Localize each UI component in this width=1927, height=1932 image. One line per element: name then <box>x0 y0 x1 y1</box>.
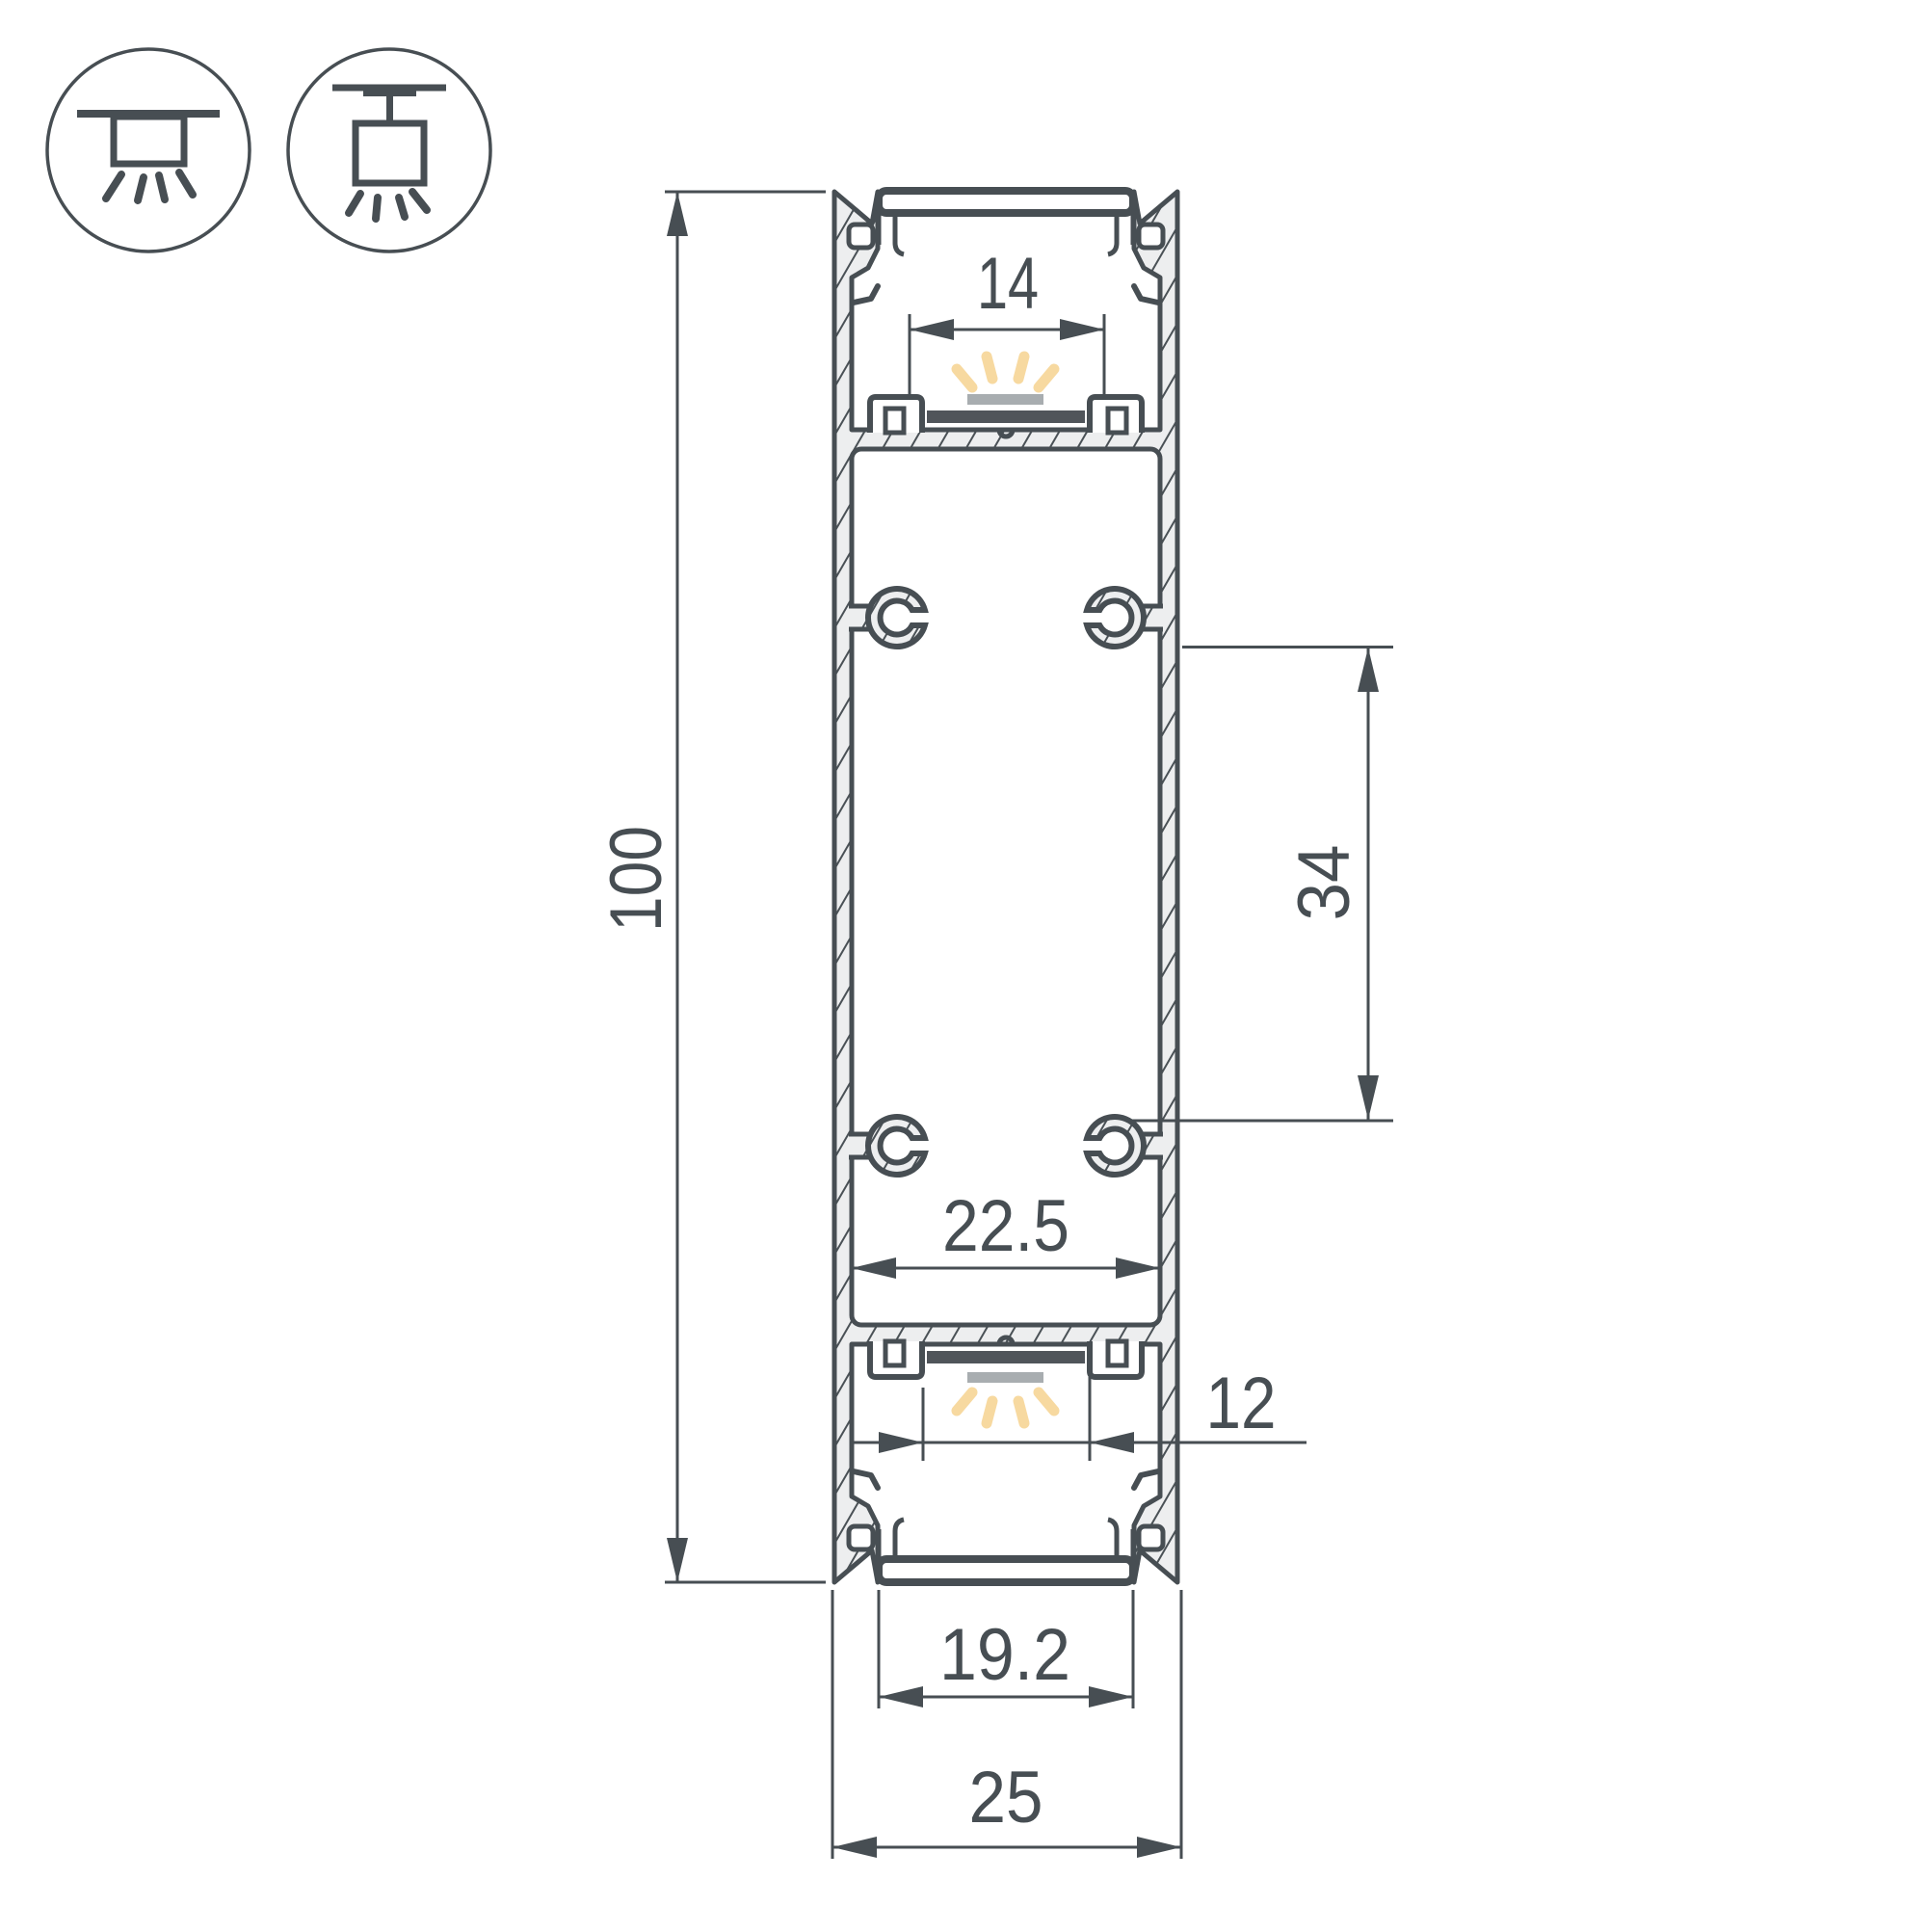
svg-text:14: 14 <box>977 243 1039 325</box>
svg-text:12: 12 <box>1206 1363 1277 1444</box>
svg-text:34: 34 <box>1283 845 1365 921</box>
svg-text:19.2: 19.2 <box>939 1614 1070 1696</box>
svg-text:100: 100 <box>595 826 677 932</box>
svg-text:22.5: 22.5 <box>942 1185 1069 1267</box>
svg-text:25: 25 <box>969 1757 1043 1839</box>
